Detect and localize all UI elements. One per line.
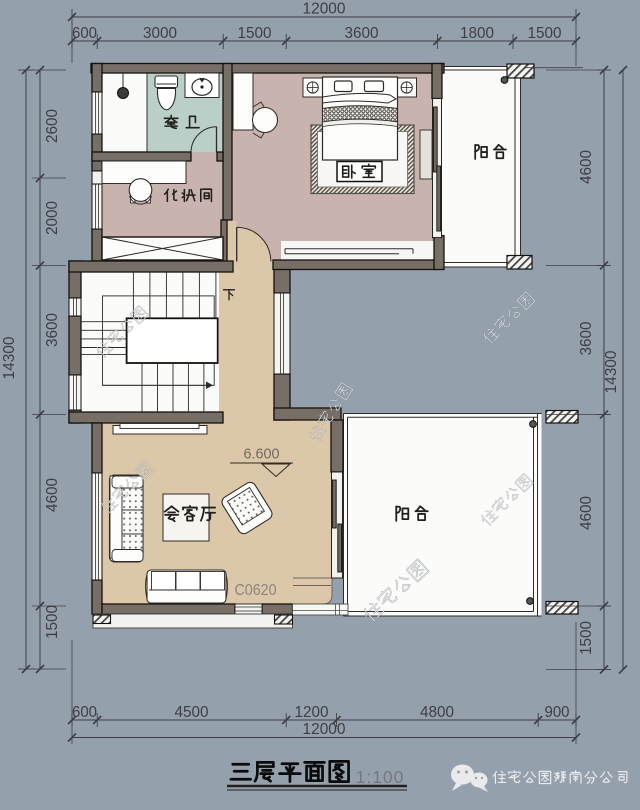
svg-text:2600: 2600 <box>44 109 61 143</box>
svg-text:600: 600 <box>72 704 97 721</box>
svg-text:2000: 2000 <box>44 201 61 235</box>
svg-text:1800: 1800 <box>460 25 494 42</box>
svg-text:14300: 14300 <box>1 336 18 379</box>
svg-text:4600: 4600 <box>578 496 595 530</box>
svg-text:4500: 4500 <box>175 704 209 721</box>
svg-text:900: 900 <box>545 704 570 721</box>
svg-text:12000: 12000 <box>303 721 346 738</box>
svg-text:1200: 1200 <box>295 704 329 721</box>
svg-text:12000: 12000 <box>303 1 346 18</box>
svg-text:3000: 3000 <box>143 25 177 42</box>
svg-text:600: 600 <box>72 25 97 42</box>
svg-text:3600: 3600 <box>578 321 595 355</box>
svg-text:1500: 1500 <box>528 25 562 42</box>
svg-text:4600: 4600 <box>44 478 61 512</box>
svg-text:4600: 4600 <box>578 150 595 184</box>
svg-text:3600: 3600 <box>44 313 61 347</box>
svg-text:3600: 3600 <box>345 25 379 42</box>
svg-text:1500: 1500 <box>578 621 595 655</box>
svg-text:C0620: C0620 <box>235 582 277 599</box>
svg-text:4800: 4800 <box>420 704 454 721</box>
svg-text:1500: 1500 <box>238 25 272 42</box>
svg-text:14300: 14300 <box>603 350 620 393</box>
svg-text:1500: 1500 <box>44 605 61 639</box>
svg-text:1:100: 1:100 <box>356 767 405 787</box>
svg-text:6.600: 6.600 <box>244 446 280 463</box>
